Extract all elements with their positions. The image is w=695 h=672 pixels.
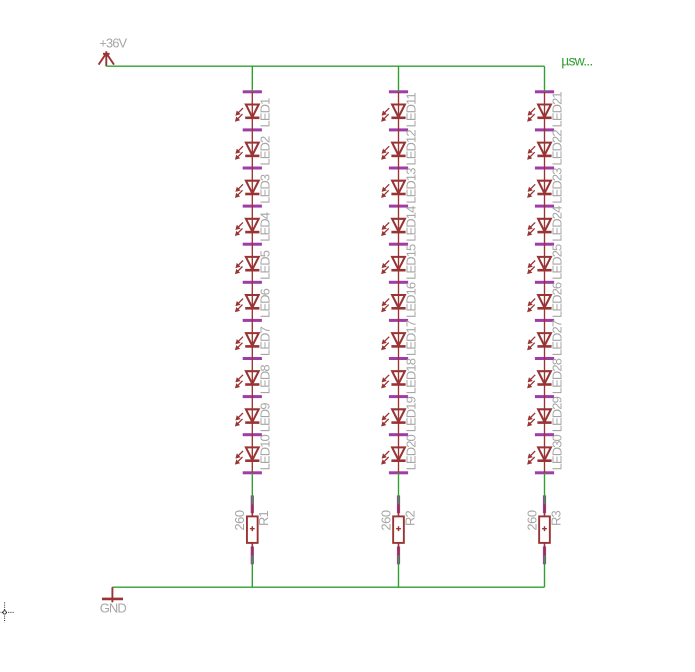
svg-text:LED18: LED18 xyxy=(404,358,419,394)
svg-text:R3: R3 xyxy=(548,511,563,526)
svg-text:LED4: LED4 xyxy=(258,212,273,242)
svg-text:LED17: LED17 xyxy=(404,320,419,356)
svg-text:R2: R2 xyxy=(402,511,417,526)
svg-text:LED20: LED20 xyxy=(404,434,419,470)
svg-text:LED13: LED13 xyxy=(404,168,419,204)
svg-text:LED11: LED11 xyxy=(404,93,419,128)
svg-text:LED14: LED14 xyxy=(404,206,419,242)
svg-text:LED5: LED5 xyxy=(258,250,273,280)
svg-text:+36V: +36V xyxy=(99,35,127,50)
svg-text:LED29: LED29 xyxy=(550,396,565,432)
svg-text:LED7: LED7 xyxy=(258,327,273,357)
svg-text:LED27: LED27 xyxy=(550,320,565,356)
svg-text:LED1: LED1 xyxy=(258,98,273,128)
svg-text:LED30: LED30 xyxy=(550,434,565,470)
svg-text:LED28: LED28 xyxy=(550,358,565,394)
svg-text:µsw...: µsw... xyxy=(561,53,592,69)
svg-text:LED24: LED24 xyxy=(550,206,565,242)
svg-text:LED8: LED8 xyxy=(258,365,273,395)
svg-text:LED25: LED25 xyxy=(550,244,565,280)
svg-text:LED16: LED16 xyxy=(404,282,419,318)
svg-text:LED21: LED21 xyxy=(550,92,565,128)
svg-text:260: 260 xyxy=(524,510,539,530)
svg-text:LED26: LED26 xyxy=(550,282,565,318)
svg-text:LED15: LED15 xyxy=(404,244,419,280)
svg-text:260: 260 xyxy=(232,510,247,530)
svg-text:LED3: LED3 xyxy=(258,174,273,204)
svg-text:LED10: LED10 xyxy=(258,434,273,470)
svg-text:LED19: LED19 xyxy=(404,396,419,432)
svg-text:260: 260 xyxy=(378,510,393,530)
svg-text:LED23: LED23 xyxy=(550,168,565,204)
svg-text:LED22: LED22 xyxy=(550,130,565,166)
svg-text:LED2: LED2 xyxy=(258,136,273,166)
svg-text:R1: R1 xyxy=(256,511,271,526)
svg-text:LED9: LED9 xyxy=(258,403,273,433)
svg-text:GND: GND xyxy=(100,601,127,616)
svg-text:LED12: LED12 xyxy=(404,130,419,166)
svg-text:LED6: LED6 xyxy=(258,288,273,318)
